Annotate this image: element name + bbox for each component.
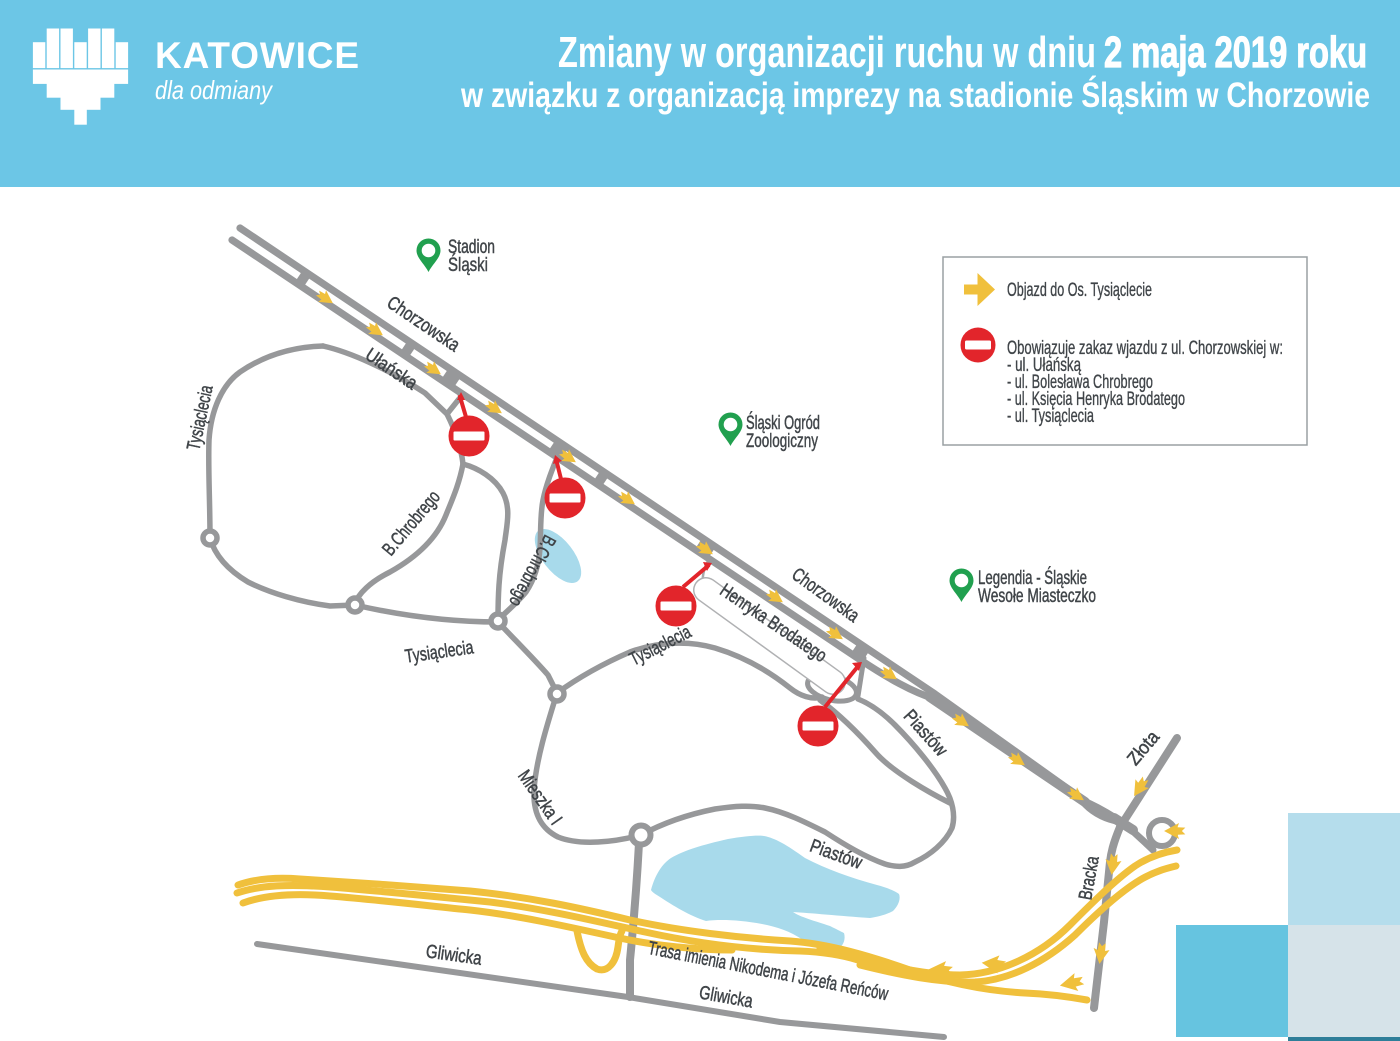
svg-text:KATOWICE: KATOWICE (155, 35, 359, 76)
svg-text:Tysiąclecia: Tysiąclecia (404, 637, 476, 667)
svg-text:- ul. Tysiąclecia: - ul. Tysiąclecia (1007, 406, 1094, 427)
svg-text:Zoologiczny: Zoologiczny (746, 431, 818, 452)
svg-text:Wesołe Miasteczko: Wesołe Miasteczko (978, 586, 1096, 607)
svg-text:w związku z organizacją imprez: w związku z organizacją imprezy na stadi… (460, 75, 1370, 115)
svg-text:dla odmiany: dla odmiany (155, 75, 274, 105)
svg-text:Gliwicka: Gliwicka (425, 941, 484, 970)
svg-text:Ułańska: Ułańska (361, 345, 421, 395)
svg-text:Objazd do Os. Tysiąclecie: Objazd do Os. Tysiąclecie (1007, 280, 1152, 301)
svg-text:2 maja 2019 roku: 2 maja 2019 roku (1104, 28, 1367, 77)
svg-text:B.Chrobrego: B.Chrobrego (379, 487, 445, 560)
svg-text:Śląski: Śląski (448, 254, 488, 276)
svg-text:Zmiany w organizacji ruchu w d: Zmiany w organizacji ruchu w dniu (558, 28, 1096, 77)
svg-text:Tysiąclecia: Tysiąclecia (626, 622, 695, 671)
